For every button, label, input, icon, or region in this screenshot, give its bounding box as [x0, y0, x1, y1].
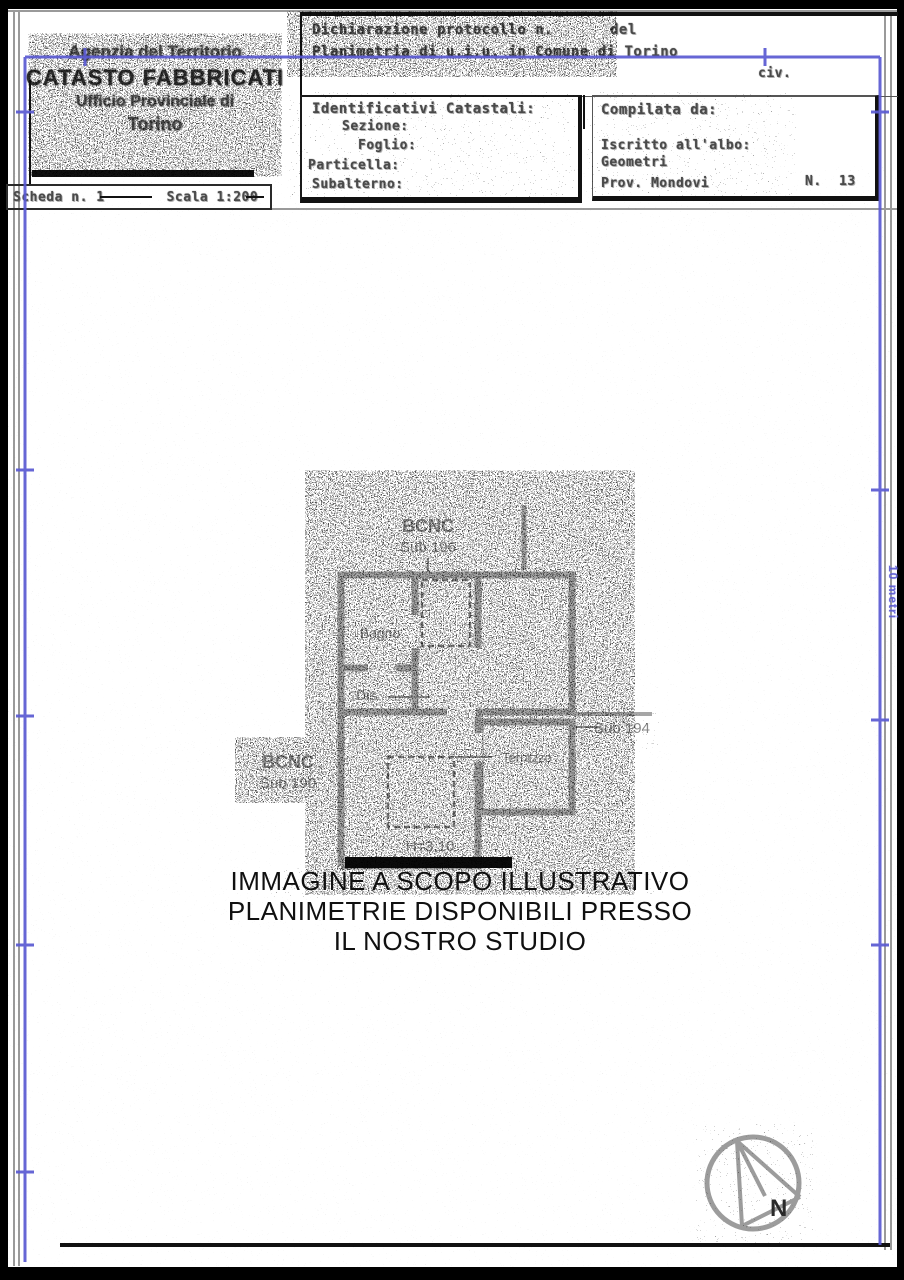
- watermark-line3: IL NOSTRO STUDIO: [180, 926, 740, 956]
- floorplan-drawing: BCNC Sub 196 Bagno Dis. Terrazzo Sub 194…: [0, 0, 904, 1280]
- scale-ruler-caption: 10 metri: [886, 565, 900, 619]
- watermark-notice: IMMAGINE A SCOPO ILLUSTRATIVO PLANIMETRI…: [180, 866, 740, 956]
- scan-noise-layer: [20, 14, 880, 1240]
- watermark-line1: IMMAGINE A SCOPO ILLUSTRATIVO: [180, 866, 740, 896]
- watermark-line2: PLANIMETRIE DISPONIBILI PRESSO: [180, 896, 740, 926]
- scanned-cadastral-sheet: Agenzia del Territorio CATASTO FABBRICAT…: [0, 0, 904, 1280]
